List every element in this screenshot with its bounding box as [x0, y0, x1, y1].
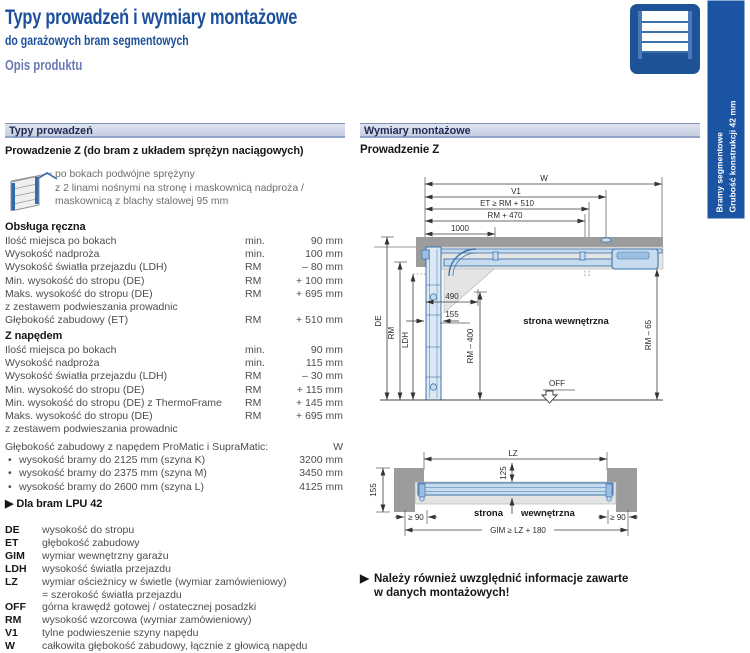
abbr-row: DEwysokość do stropu [5, 524, 345, 537]
abbr-key: OFF [5, 601, 42, 614]
row-value: + 695 mm [283, 410, 343, 423]
row-label: Ilość miejsca po bokach [5, 235, 245, 248]
page-subtitle-text: do garażowych bram segmentowych [5, 33, 189, 48]
table-row: Maks. wysokość do stropu (DE)RM+ 695 mm [5, 288, 343, 301]
mounting-z-heading: Prowadzenie Z [360, 144, 439, 156]
abbr-key: RM [5, 614, 42, 627]
abbr-key: W [5, 640, 42, 653]
sectional-door-icon [628, 2, 702, 76]
abbr-key: LDH [5, 563, 42, 576]
row-label: Ilość miejsca po bokach [5, 344, 245, 357]
dim-label-90-left: ≥ 90 [408, 513, 424, 522]
row-label: wysokość bramy do 2125 mm (szyna K) [19, 454, 283, 467]
table-row: •wysokość bramy do 2125 mm (szyna K)3200… [5, 454, 343, 467]
table-row: Min. wysokość do stropu (DE) z ThermoFra… [5, 397, 343, 410]
row-value: – 80 mm [283, 261, 343, 274]
row-label: z zestawem podwieszania prowadnic [5, 301, 245, 314]
row-ref: min. [245, 344, 283, 357]
abbr-desc: górna krawędź gotowej / ostatecznej posa… [42, 601, 345, 614]
manual-operation-table: Ilość miejsca po bokachmin.90 mm Wysokoś… [5, 235, 343, 327]
page-title-text: Typy prowadzeń i wymiary montażowe [5, 6, 297, 30]
abbr-desc-line: = szerokość światła przejazdu [42, 589, 345, 602]
track-z-description-line: po bokach podwójne sprężyny [55, 168, 304, 182]
abbr-desc-line: wymiar ościeżnicy w świetle (wymiar zamó… [42, 576, 345, 589]
table-row: Głębokość zabudowy (ET)RM+ 510 mm [5, 314, 343, 327]
table-row: Wysokość światła przejazdu (LDH)RM– 30 m… [5, 370, 343, 383]
table-row: Ilość miejsca po bokachmin.90 mm [5, 344, 343, 357]
dim-label-et: ET ≥ RM + 510 [480, 199, 534, 208]
row-value: + 115 mm [283, 384, 343, 397]
page-subtitle: do garażowych bram segmentowych [5, 33, 241, 48]
mounting-data-note: ▶ Należy również uwzględnić informacje z… [360, 572, 690, 600]
abbreviation-list: DEwysokość do stropu ETgłębokość zabudow… [5, 524, 345, 653]
section-bar-track-types-label: Typy prowadzeń [9, 125, 93, 137]
abbr-key: DE [5, 524, 42, 537]
row-label: Maks. wysokość do stropu (DE) [5, 288, 245, 301]
row-label: z zestawem podwieszania prowadnic [5, 423, 245, 436]
inside-label-right: wewnętrzna [520, 508, 576, 519]
table-row: Ilość miejsca po bokachmin.90 mm [5, 235, 343, 248]
dim-label-v1: V1 [511, 187, 521, 196]
dim-label-lz: LZ [508, 449, 517, 458]
row-ref: RM [245, 370, 283, 383]
side-tab-line2: Grubość konstrukcji 42 mm [726, 0, 739, 212]
powered-operation-heading: Z napędem [5, 330, 62, 342]
dim-label-rm470: RM + 470 [488, 211, 523, 220]
lpu42-note: ▶ Dla bram LPU 42 [5, 497, 102, 510]
dim-label-1000: 1000 [451, 224, 469, 233]
row-label: Min. wysokość do stropu (DE) z ThermoFra… [5, 397, 245, 410]
row-ref: RM [245, 261, 283, 274]
row-ref: min. [245, 248, 283, 261]
abbr-row: OFFgórna krawędź gotowej / ostatecznej p… [5, 601, 345, 614]
table-row: Min. wysokość do stropu (DE)RM+ 115 mm [5, 384, 343, 397]
section-title-text: Opis produktu [5, 58, 82, 74]
dim-label-rm400: RM – 400 [466, 328, 475, 363]
row-ref: min. [245, 357, 283, 370]
bullet: • [5, 454, 19, 467]
bullet: • [5, 481, 19, 494]
row-label: Min. wysokość do stropu (DE) [5, 275, 245, 288]
bullet: • [5, 467, 19, 480]
row-value: + 100 mm [283, 275, 343, 288]
table-row: Min. wysokość do stropu (DE)RM+ 100 mm [5, 275, 343, 288]
dim-label-90-right: ≥ 90 [610, 513, 626, 522]
table-row: Wysokość nadprożamin.100 mm [5, 248, 343, 261]
section-bar-mounting-dims: Wymiary montażowe [360, 123, 700, 138]
inside-label-left: strona [474, 508, 504, 519]
abbr-row: LDHwysokość światła przejazdu [5, 563, 345, 576]
track-z-description-line: maskownicą z blachy stalowej 95 mm [55, 195, 304, 209]
row-ref: RM [245, 275, 283, 288]
row-label: wysokość bramy do 2600 mm (szyna L) [19, 481, 283, 494]
abbr-row: V1tylne podwieszenie szyny napędu [5, 627, 345, 640]
abbr-desc: całkowita głębokość zabudowy, łącznie z … [42, 640, 345, 653]
dim-label-490: 490 [445, 292, 459, 301]
row-ref [245, 423, 283, 436]
note-line2: w danych montażowych! [360, 586, 690, 600]
row-label: Min. wysokość do stropu (DE) [5, 384, 245, 397]
row-value: 90 mm [283, 344, 343, 357]
row-label: wysokość bramy do 2375 mm (szyna M) [19, 467, 283, 480]
triangle-marker-icon: ▶ [5, 498, 13, 510]
row-value: – 30 mm [283, 370, 343, 383]
abbr-desc: wysokość wzorcowa (wymiar zamówieniowy) [42, 614, 345, 627]
track-z-heading: Prowadzenie Z (do bram z układem sprężyn… [5, 145, 304, 157]
row-value: 4125 mm [283, 481, 343, 494]
table-row: •wysokość bramy do 2375 mm (szyna M)3450… [5, 467, 343, 480]
dim-label-155: 155 [445, 310, 459, 319]
row-value: + 145 mm [283, 397, 343, 410]
row-value: 90 mm [283, 235, 343, 248]
side-section-diagram: W V1 ET ≥ RM + 510 RM + 470 1000 DE RM L… [360, 163, 700, 435]
row-label: Wysokość światła przejazdu (LDH) [5, 261, 245, 274]
row-label: Wysokość światła przejazdu (LDH) [5, 370, 245, 383]
manual-operation-heading-text: Obsługa ręczna [5, 221, 86, 233]
track-z-description: po bokach podwójne sprężyny z 2 linami n… [55, 168, 304, 209]
row-value: W [283, 441, 343, 454]
side-tab: Bramy segmentowe Grubość konstrukcji 42 … [707, 0, 744, 218]
row-value: 3200 mm [283, 454, 343, 467]
dim-label-155-plan: 155 [369, 483, 378, 497]
inside-label: strona wewnętrzna [523, 316, 609, 327]
table-row: Maks. wysokość do stropu (DE)RM+ 695 mm [5, 410, 343, 423]
manual-operation-heading: Obsługa ręczna [5, 221, 86, 233]
row-label: Głębokość zabudowy z napędem ProMatic i … [5, 441, 283, 454]
off-arrow-icon [542, 391, 557, 403]
row-ref: RM [245, 410, 283, 423]
abbr-key: V1 [5, 627, 42, 640]
table-row: Wysokość nadprożamin.115 mm [5, 357, 343, 370]
row-value: 3450 mm [283, 467, 343, 480]
row-ref: RM [245, 384, 283, 397]
dim-label-w: W [540, 174, 548, 183]
row-ref: RM [245, 397, 283, 410]
track-z-heading-text: Prowadzenie Z (do bram z układem sprężyn… [5, 145, 304, 157]
powered-operation-heading-text: Z napędem [5, 330, 62, 342]
table-row: Głębokość zabudowy z napędem ProMatic i … [5, 441, 343, 454]
row-ref: RM [245, 314, 283, 327]
side-tab-line1: Bramy segmentowe [713, 0, 726, 212]
abbr-row: LZwymiar ościeżnicy w świetle (wymiar za… [5, 576, 345, 602]
dim-label-125: 125 [499, 466, 508, 480]
dim-label-gim: GIM ≥ LZ + 180 [490, 526, 546, 535]
table-row: z zestawem podwieszania prowadnic [5, 301, 343, 314]
spring-track-icon [8, 169, 58, 211]
row-ref: RM [245, 288, 283, 301]
track-z-description-line: z 2 linami nośnymi na stronę i maskownic… [55, 182, 304, 196]
row-label: Wysokość nadproża [5, 357, 245, 370]
row-ref [245, 301, 283, 314]
section-title: Opis produktu [5, 58, 104, 74]
row-value: 100 mm [283, 248, 343, 261]
row-ref: min. [245, 235, 283, 248]
note-line1: Należy również uwzględnić informacje zaw… [374, 572, 628, 586]
row-value: + 695 mm [283, 288, 343, 301]
table-row: z zestawem podwieszania prowadnic [5, 423, 343, 436]
abbr-desc: wysokość do stropu [42, 524, 345, 537]
abbr-key: ET [5, 537, 42, 550]
dim-label-ldh: LDH [401, 332, 410, 348]
abbr-row: ETgłębokość zabudowy [5, 537, 345, 550]
install-depth-table: Głębokość zabudowy z napędem ProMatic i … [5, 441, 343, 494]
abbr-desc: wymiar ościeżnicy w świetle (wymiar zamó… [42, 576, 345, 602]
section-bar-mounting-dims-label: Wymiary montażowe [364, 125, 471, 137]
powered-operation-table: Ilość miejsca po bokachmin.90 mm Wysokoś… [5, 344, 343, 436]
off-label: OFF [549, 379, 565, 388]
section-bar-track-types: Typy prowadzeń [5, 123, 345, 138]
row-label: Maks. wysokość do stropu (DE) [5, 410, 245, 423]
dim-label-rm65: RM – 65 [644, 319, 653, 350]
abbr-desc: głębokość zabudowy [42, 537, 345, 550]
abbr-row: Wcałkowita głębokość zabudowy, łącznie z… [5, 640, 345, 653]
mounting-z-heading-text: Prowadzenie Z [360, 144, 439, 156]
abbr-desc: wymiar wewnętrzny garażu [42, 550, 345, 563]
table-row: Wysokość światła przejazdu (LDH)RM– 80 m… [5, 261, 343, 274]
table-row: •wysokość bramy do 2600 mm (szyna L)4125… [5, 481, 343, 494]
plan-view-diagram: LZ 125 155 strona wewnętrzna ≥ 90 ≥ 90 G… [360, 440, 700, 548]
row-label: Wysokość nadproża [5, 248, 245, 261]
row-value: + 510 mm [283, 314, 343, 327]
lpu42-note-text: Dla bram LPU 42 [16, 498, 102, 510]
row-value [283, 423, 343, 436]
abbr-row: GIMwymiar wewnętrzny garażu [5, 550, 345, 563]
abbr-key: GIM [5, 550, 42, 563]
row-value [283, 301, 343, 314]
abbr-row: RMwysokość wzorcowa (wymiar zamówieniowy… [5, 614, 345, 627]
dim-label-de: DE [374, 315, 383, 326]
triangle-marker-icon: ▶ [360, 572, 374, 586]
abbr-desc: tylne podwieszenie szyny napędu [42, 627, 345, 640]
dim-label-rm: RM [387, 326, 396, 339]
abbr-key: LZ [5, 576, 42, 602]
row-value: 115 mm [283, 357, 343, 370]
page-title: Typy prowadzeń i wymiary montażowe [5, 6, 380, 30]
abbr-desc: wysokość światła przejazdu [42, 563, 345, 576]
row-label: Głębokość zabudowy (ET) [5, 314, 245, 327]
